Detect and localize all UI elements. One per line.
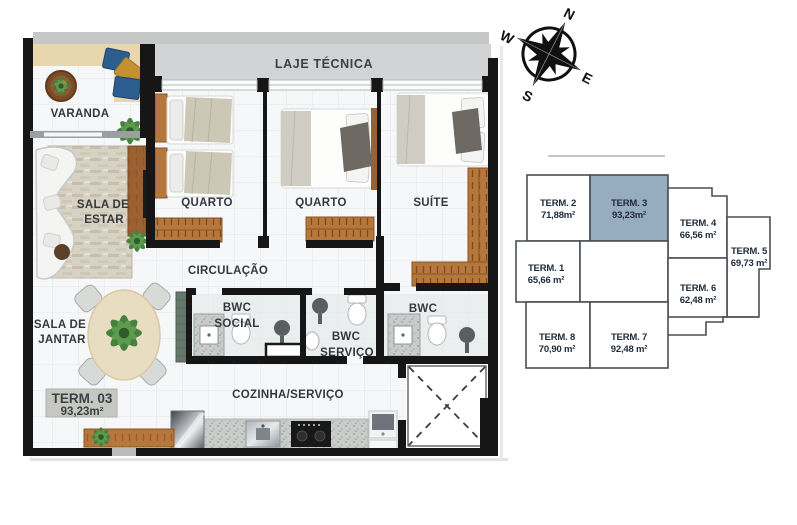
key-outline-step [668, 317, 759, 335]
svg-text:70,90 m²: 70,90 m² [539, 344, 575, 355]
window [162, 80, 482, 90]
svg-text:92,48 m²: 92,48 m² [611, 344, 647, 355]
label-sala-estar: SALA DE [77, 199, 129, 211]
kitchen-counter [204, 419, 368, 449]
technical-shaft [406, 364, 488, 448]
label-quarto-2: QUARTO [295, 197, 346, 209]
compass-south: S [520, 87, 536, 105]
key-plan: TERM. 2 71,88m² TERM. 3 93,23m² TERM. 4 … [516, 155, 770, 368]
svg-text:JANTAR: JANTAR [38, 334, 86, 346]
wardrobe-quarto-1 [153, 218, 222, 242]
washer [369, 411, 397, 451]
label-suite: SUÍTE [413, 196, 448, 209]
svg-text:ESTAR: ESTAR [84, 214, 124, 226]
varanda-glass-door [44, 133, 102, 137]
compass-north: N [561, 4, 577, 23]
svg-text:71,88m²: 71,88m² [541, 210, 575, 221]
entry-door [112, 448, 136, 456]
floor-plan-page: LAJE TÉCNICA VARANDA SALA DE ESTAR QUART… [0, 0, 797, 525]
plant-icon [126, 230, 148, 252]
svg-text:SERVIÇO: SERVIÇO [320, 347, 374, 359]
compass-west: W [498, 27, 518, 48]
sideboard [84, 427, 174, 447]
compass-east: E [579, 69, 595, 87]
svg-text:65,66 m²: 65,66 m² [528, 275, 564, 286]
key-label-term8: TERM. 8 [539, 332, 575, 343]
key-core-box [580, 241, 668, 302]
tv-panel [128, 146, 149, 236]
label-sala-jantar: SALA DE [34, 319, 86, 331]
label-bwc-servico: BWC [332, 331, 360, 343]
wardrobe-quarto-2 [306, 217, 374, 241]
key-label-term6: TERM. 6 [680, 283, 716, 294]
label-cozinha: COZINHA/SERVIÇO [232, 389, 344, 401]
floor-plan: LAJE TÉCNICA VARANDA SALA DE ESTAR QUART… [23, 32, 508, 461]
compass-icon: N E S W [478, 0, 617, 126]
key-label-term7: TERM. 7 [611, 332, 647, 343]
bed-suite [397, 93, 489, 166]
top-parapet [33, 32, 489, 44]
round-cushion [54, 244, 70, 260]
floor-plan-canvas: LAJE TÉCNICA VARANDA SALA DE ESTAR QUART… [0, 0, 797, 525]
svg-text:69,73 m²: 69,73 m² [731, 258, 767, 269]
key-label-term5: TERM. 5 [731, 246, 768, 257]
unit-id-box: TERM. 03 93,23m² [46, 389, 117, 418]
label-laje-tecnica: LAJE TÉCNICA [275, 56, 373, 71]
label-bwc-social: BWC [223, 302, 251, 314]
svg-text:93,23m²: 93,23m² [612, 210, 646, 221]
bed-quarto-2 [281, 108, 377, 190]
key-label-term1: TERM. 1 [528, 263, 565, 274]
unit-title: TERM. 03 [52, 391, 113, 406]
svg-text:SOCIAL: SOCIAL [214, 318, 259, 330]
svg-text:62,48 m²: 62,48 m² [680, 295, 716, 306]
key-label-term4: TERM. 4 [680, 218, 717, 229]
dining-set [72, 281, 172, 388]
unit-area: 93,23m² [61, 406, 104, 418]
fridge [171, 411, 206, 449]
label-quarto-1: QUARTO [181, 197, 232, 209]
label-bwc-suite: BWC [409, 303, 437, 315]
label-varanda: VARANDA [51, 108, 110, 120]
varanda-planter [46, 71, 76, 101]
label-circulacao: CIRCULAÇÃO [188, 264, 268, 277]
svg-text:66,56 m²: 66,56 m² [680, 230, 716, 241]
key-label-term2: TERM. 2 [540, 198, 576, 209]
key-label-term3: TERM. 3 [611, 198, 647, 209]
